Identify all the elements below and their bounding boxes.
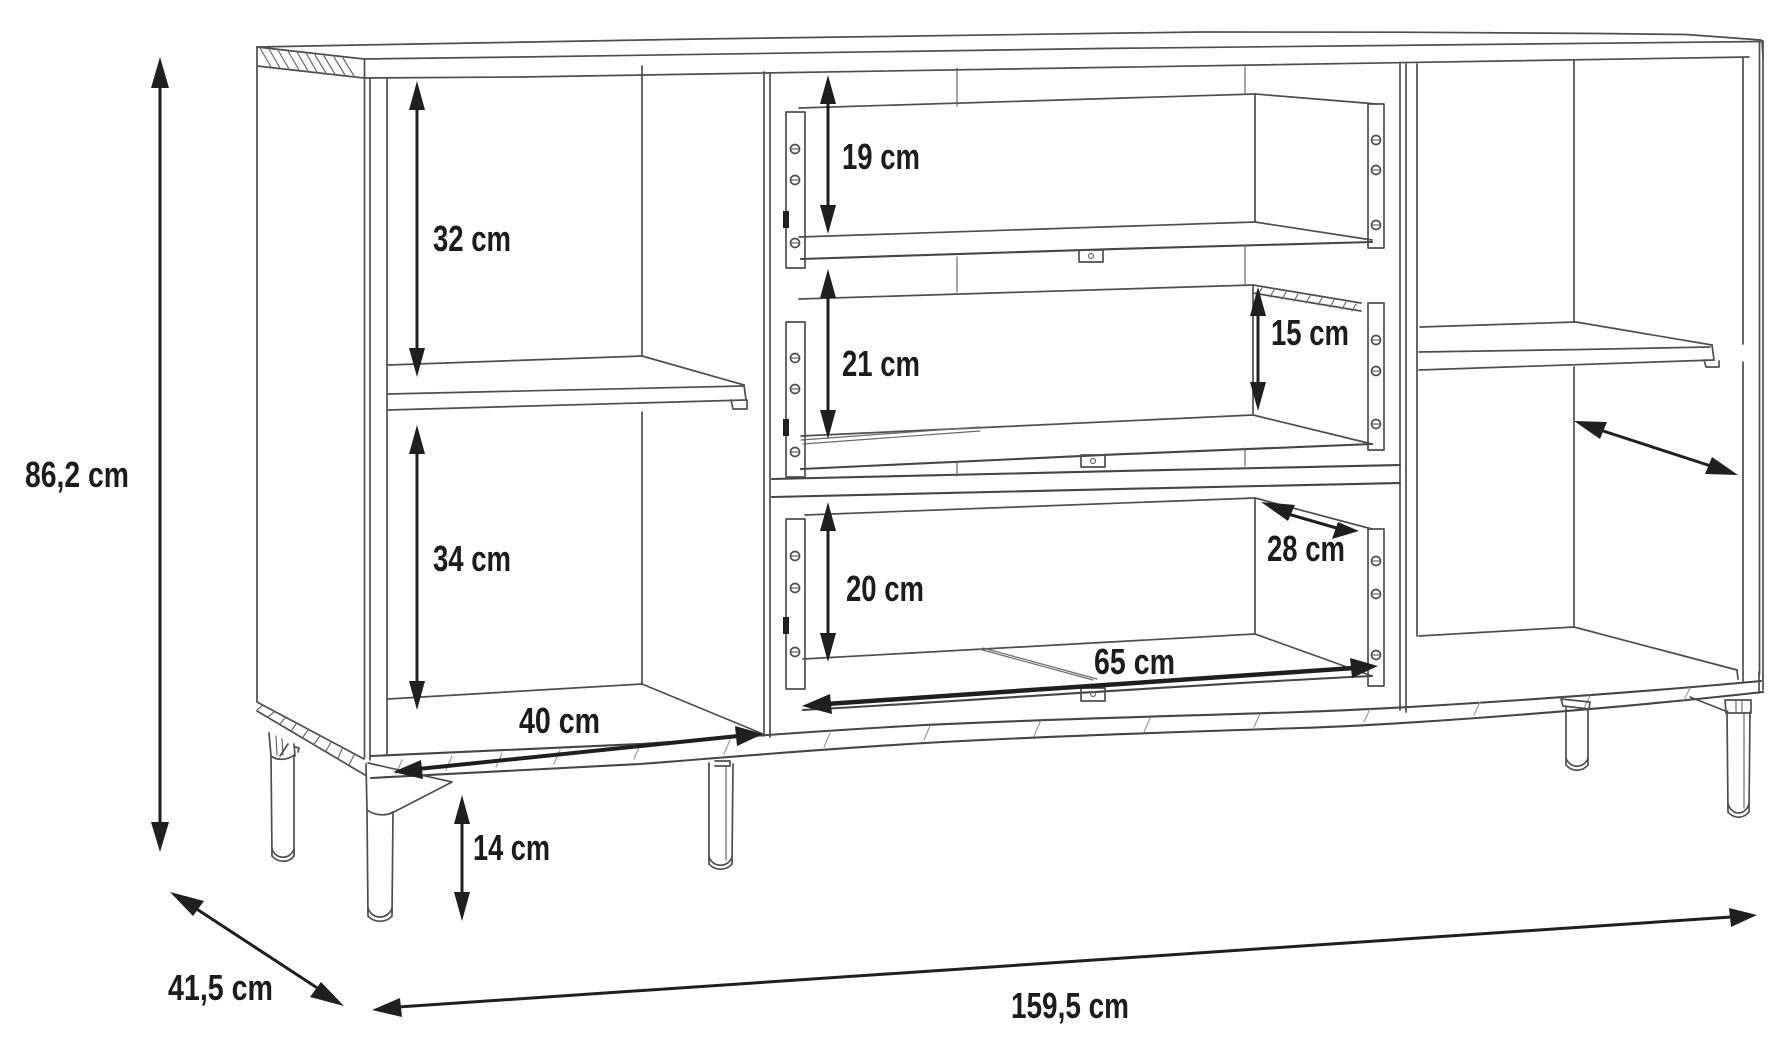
svg-text:20 cm: 20 cm xyxy=(846,568,924,609)
svg-text:65 cm: 65 cm xyxy=(1094,641,1175,682)
svg-text:19 cm: 19 cm xyxy=(842,136,920,177)
svg-text:21 cm: 21 cm xyxy=(842,343,920,384)
svg-text:15 cm: 15 cm xyxy=(1271,312,1349,353)
svg-text:32 cm: 32 cm xyxy=(433,218,511,259)
svg-text:86,2 cm: 86,2 cm xyxy=(25,454,129,495)
svg-text:34 cm: 34 cm xyxy=(433,538,511,579)
svg-text:40 cm: 40 cm xyxy=(519,700,600,741)
svg-text:28 cm: 28 cm xyxy=(1267,528,1345,569)
svg-text:14 cm: 14 cm xyxy=(473,827,550,868)
svg-text:41,5 cm: 41,5 cm xyxy=(168,967,273,1008)
svg-text:159,5 cm: 159,5 cm xyxy=(1011,985,1129,1026)
